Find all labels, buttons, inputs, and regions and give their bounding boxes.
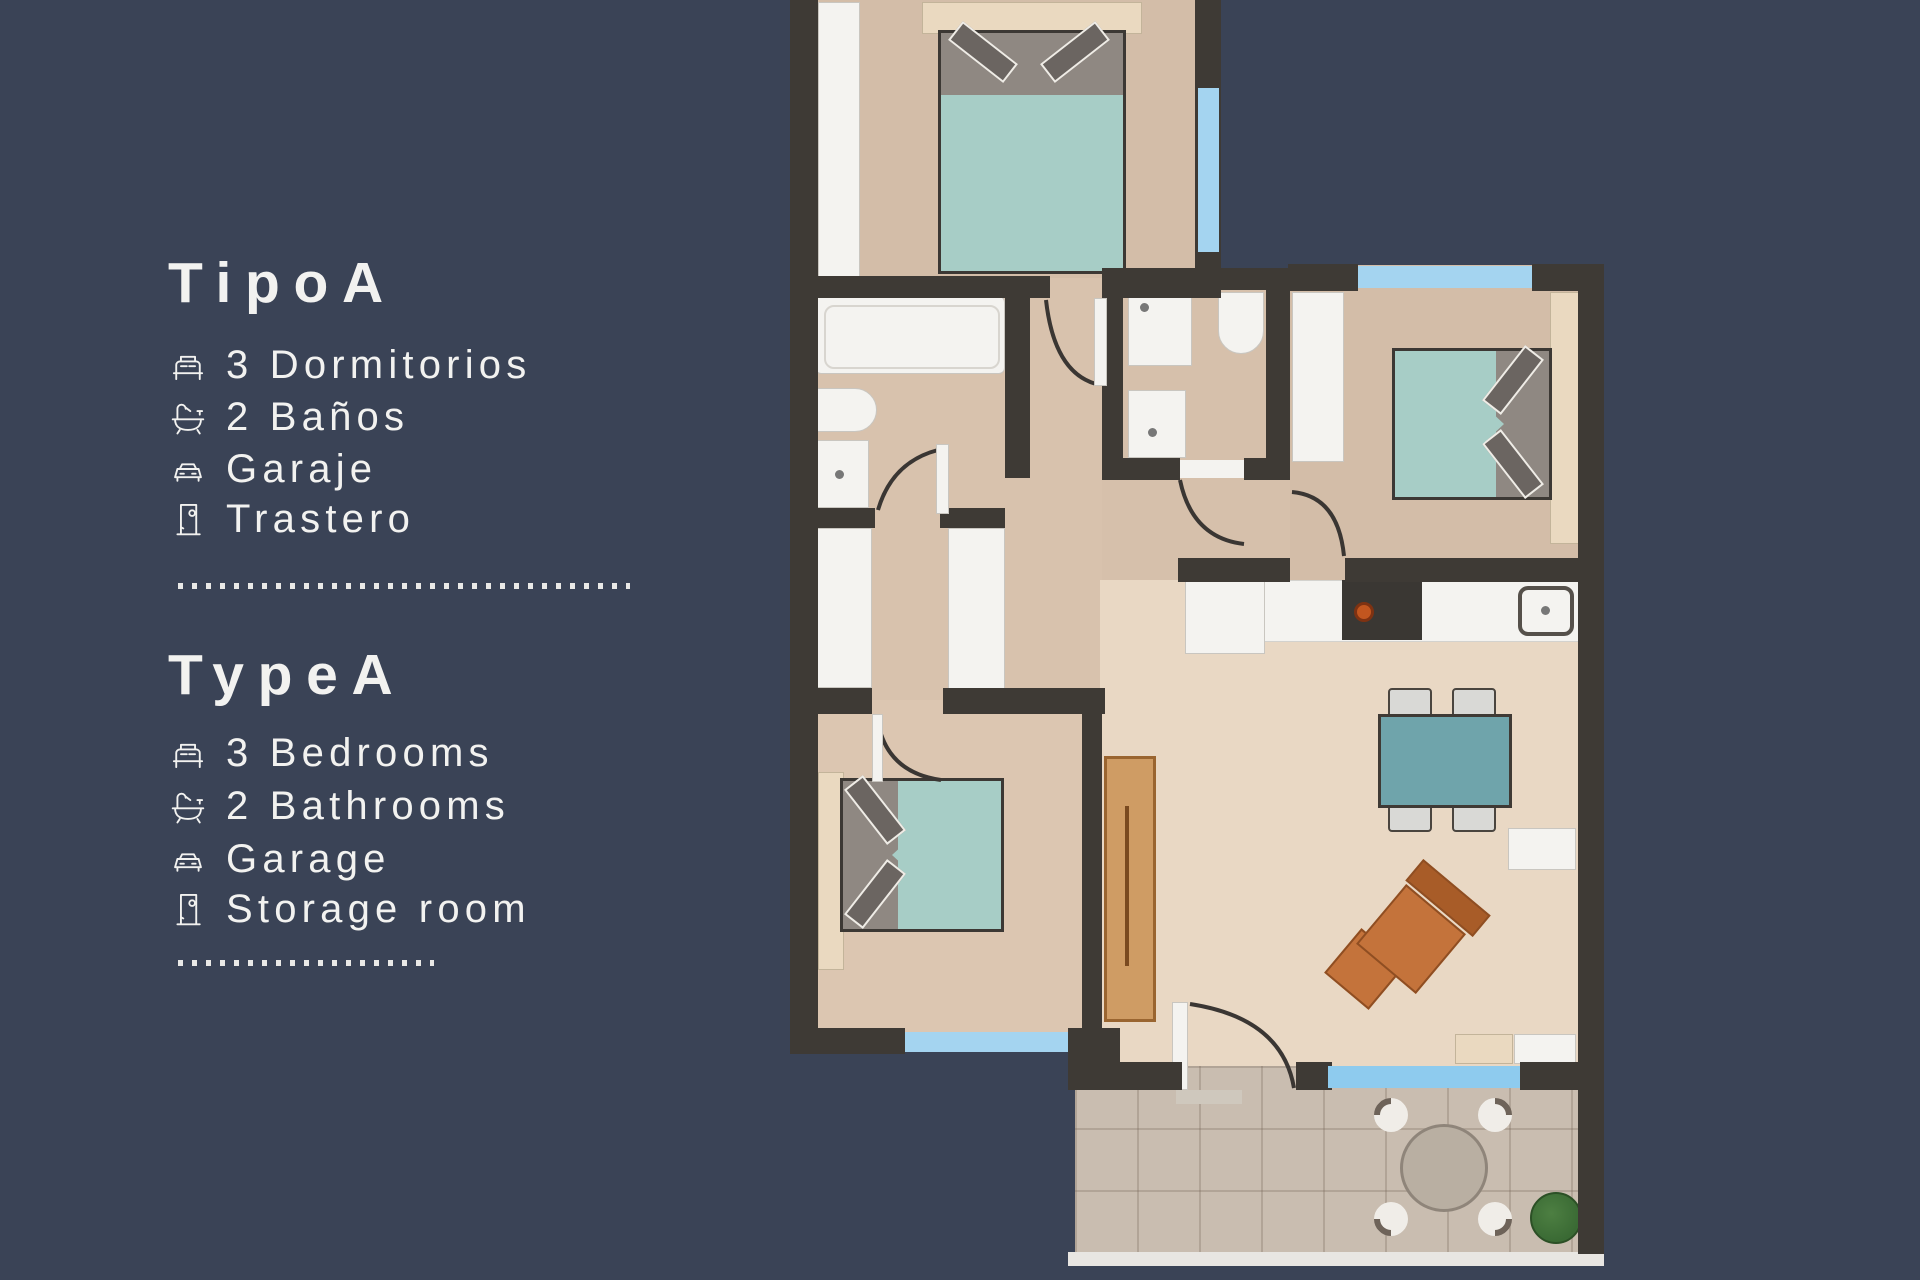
entrance-step [1176,1090,1242,1104]
wall [1082,714,1102,1030]
basin-drain [835,470,844,479]
feature-row: Garage [168,836,391,882]
wall [1578,264,1604,582]
bed-sheet-triangle [892,798,954,912]
living-room-floor [1100,580,1582,1066]
sideboard [1514,1034,1576,1064]
wall [1005,298,1030,478]
bed-icon [168,733,208,773]
sideboard [1455,1034,1513,1064]
window [905,1032,1068,1052]
dotted-divider [178,960,434,966]
bathtub-icon [168,397,208,437]
wall [1266,268,1290,480]
poster: TipoA 3 Dormitorios 2 Baños Garaje Trast… [0,0,1920,1280]
wall [790,688,872,714]
tall-wardrobe [1104,756,1156,1022]
wall [1578,1090,1604,1254]
bathtub-icon [168,786,208,826]
feature-label: 3 Bedrooms [226,731,494,776]
section-title-spanish: TipoA [168,250,397,316]
feature-label: 3 Dormitorios [226,343,531,388]
washbasin [1128,390,1186,458]
feature-label: 2 Baños [226,395,409,440]
feature-label: 2 Bathrooms [226,784,510,829]
door-leaf [872,714,883,782]
fridge [1185,578,1265,654]
feature-label: Trastero [226,497,415,542]
section-title-english: TypeA [168,642,406,708]
hall-closet [815,528,872,688]
wall [1345,558,1604,582]
wall [790,276,1050,298]
plant [1530,1192,1582,1244]
sink-drain [1541,606,1550,615]
wall [1288,264,1358,291]
toilet [817,388,877,432]
sideboard [1508,828,1576,870]
wall [1520,1062,1604,1090]
window [1328,1066,1524,1088]
window [1358,266,1532,288]
hall-closet [948,528,1005,691]
door-threshold [1180,460,1244,478]
stove-burner [1354,602,1374,622]
feature-label: Garaje [226,447,377,492]
bathtub-inner [824,305,1000,369]
feature-row: 2 Baños [168,394,409,440]
wall [1244,458,1290,480]
feature-row: Trastero [168,496,415,542]
wall [943,688,1105,714]
wall [1068,1028,1120,1090]
wall [940,508,1005,528]
feature-row: Garaje [168,446,377,492]
shower-drain [1140,303,1149,312]
wall [1178,558,1290,582]
dining-table [1378,714,1512,808]
terrace-edge [1068,1252,1604,1266]
info-panel: TipoA 3 Dormitorios 2 Baños Garaje Trast… [0,0,700,1280]
wall [1120,1062,1182,1090]
wardrobe-handle [1125,806,1129,966]
dotted-divider [178,583,630,589]
wall [1296,1062,1332,1090]
feature-row: 2 Bathrooms [168,783,510,829]
wall [1578,580,1604,1092]
feature-label: Storage room [226,887,531,932]
wall [790,1028,905,1054]
wardrobe [1292,292,1344,462]
door-leaf [1094,298,1107,386]
shower-tray [1128,292,1192,366]
bed-headboard [1550,292,1580,544]
toilet [1218,292,1264,354]
car-icon [168,839,208,879]
feature-row: Storage room [168,886,531,932]
door-icon [168,889,208,929]
feature-row: 3 Bedrooms [168,730,494,776]
bed-sheet-triangle [1444,368,1504,480]
wall [1102,458,1180,480]
wall [790,508,875,528]
car-icon [168,449,208,489]
terrace-table [1400,1124,1488,1212]
wall [1102,268,1292,290]
door-icon [168,499,208,539]
bed-icon [168,345,208,385]
feature-label: Garage [226,837,391,882]
basin-drain [1148,428,1157,437]
feature-row: 3 Dormitorios [168,342,531,388]
door-leaf [936,444,949,514]
window [1198,88,1219,252]
bed-sheet-triangle [976,96,1088,156]
